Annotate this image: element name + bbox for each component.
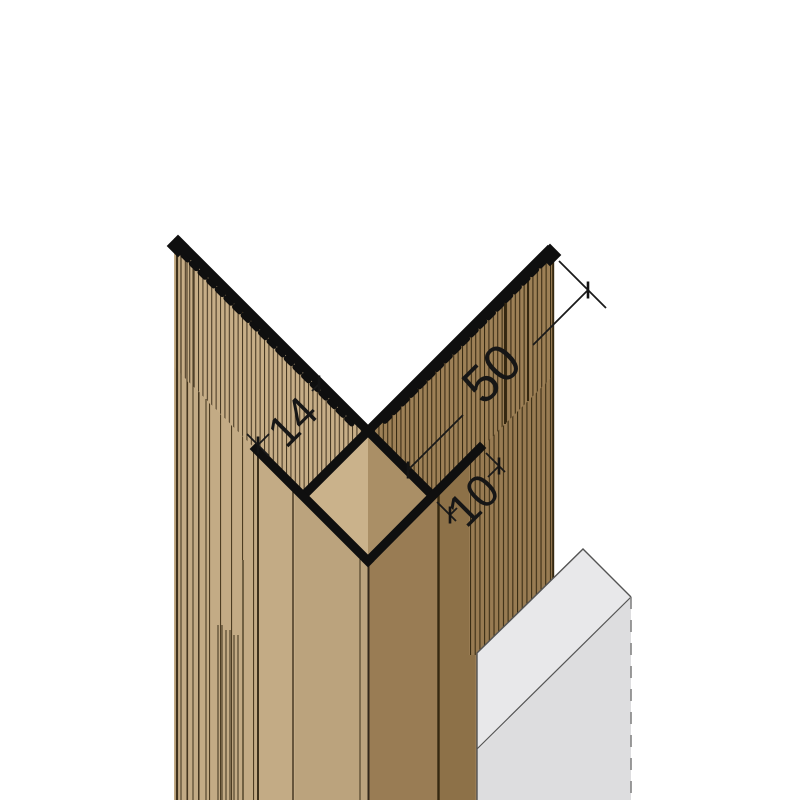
technical-drawing-canvas: 14 50 10	[0, 0, 800, 800]
corner-profile-drawing: 14 50 10	[0, 0, 800, 800]
extension-line	[559, 261, 606, 308]
